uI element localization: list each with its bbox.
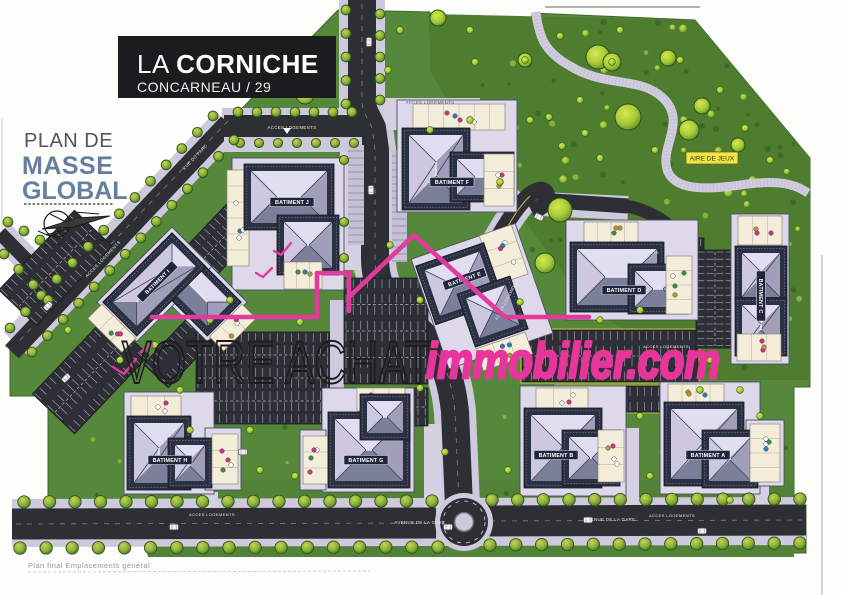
svg-text:BATIMENT A: BATIMENT A <box>691 453 726 459</box>
svg-text:BATIMENT J: BATIMENT J <box>275 200 309 206</box>
svg-text:BATIMENT C: BATIMENT C <box>757 279 763 314</box>
svg-text:AIRE DE JEUX: AIRE DE JEUX <box>690 156 735 163</box>
svg-text:BATIMENT B: BATIMENT B <box>539 453 574 459</box>
svg-text:CONCARNEAU / 29: CONCARNEAU / 29 <box>137 79 271 95</box>
svg-text:VOTRE ACHAT: VOTRE ACHAT <box>122 329 432 396</box>
svg-text:AVENUE DE LA GARE: AVENUE DE LA GARE <box>395 520 446 525</box>
svg-text:ACCES LOGEMENTS: ACCES LOGEMENTS <box>189 512 235 517</box>
svg-text:PLAN DE: PLAN DE <box>24 130 113 152</box>
svg-text:GLOBAL: GLOBAL <box>22 177 128 205</box>
svg-text:AVENUE DE LA GARE: AVENUE DE LA GARE <box>585 517 636 522</box>
svg-text:immobilier.com: immobilier.com <box>426 333 720 389</box>
svg-text:BATIMENT D: BATIMENT D <box>607 288 642 294</box>
svg-text:ACCES LOGEMENTS: ACCES LOGEMENTS <box>613 250 659 255</box>
svg-text:ACCES LOGEMENTS: ACCES LOGEMENTS <box>649 513 695 518</box>
svg-text:LA CORNICHE: LA CORNICHE <box>137 49 319 79</box>
svg-text:MASSE: MASSE <box>22 152 113 180</box>
svg-text:ACCES LOGEMENTS: ACCES LOGEMENTS <box>268 125 317 130</box>
svg-text:BATIMENT G: BATIMENT G <box>348 458 383 464</box>
svg-text:BATIMENT H: BATIMENT H <box>153 458 188 464</box>
svg-text:BATIMENT F: BATIMENT F <box>435 180 470 186</box>
svg-text:ACCES LOGEMENTS: ACCES LOGEMENTS <box>406 100 455 105</box>
svg-text:Plan final Emplacements généra: Plan final Emplacements général <box>28 561 150 570</box>
